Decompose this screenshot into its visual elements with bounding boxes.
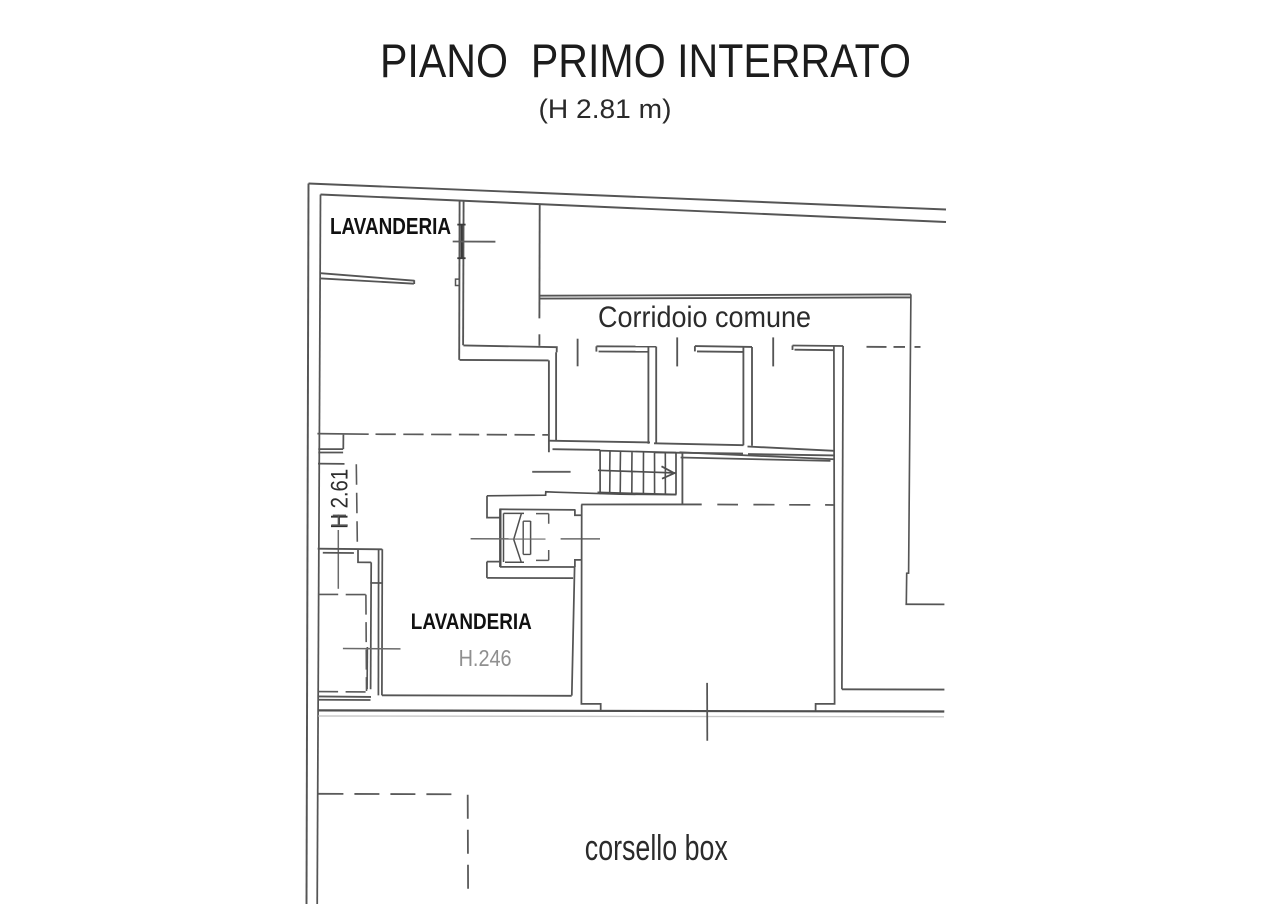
svg-text:H.246: H.246 <box>459 645 512 671</box>
svg-text:PIANO PRIMO INTERRATO: PIANO PRIMO INTERRATO <box>380 34 911 87</box>
svg-text:LAVANDERIA: LAVANDERIA <box>411 609 532 634</box>
svg-text:LAVANDERIA: LAVANDERIA <box>330 213 451 239</box>
svg-text:Corridoio comune: Corridoio comune <box>598 301 811 334</box>
svg-text:H 2.61: H 2.61 <box>327 469 354 529</box>
svg-text:(H 2.81 m): (H 2.81 m) <box>539 94 672 124</box>
svg-text:corsello box: corsello box <box>585 827 728 868</box>
